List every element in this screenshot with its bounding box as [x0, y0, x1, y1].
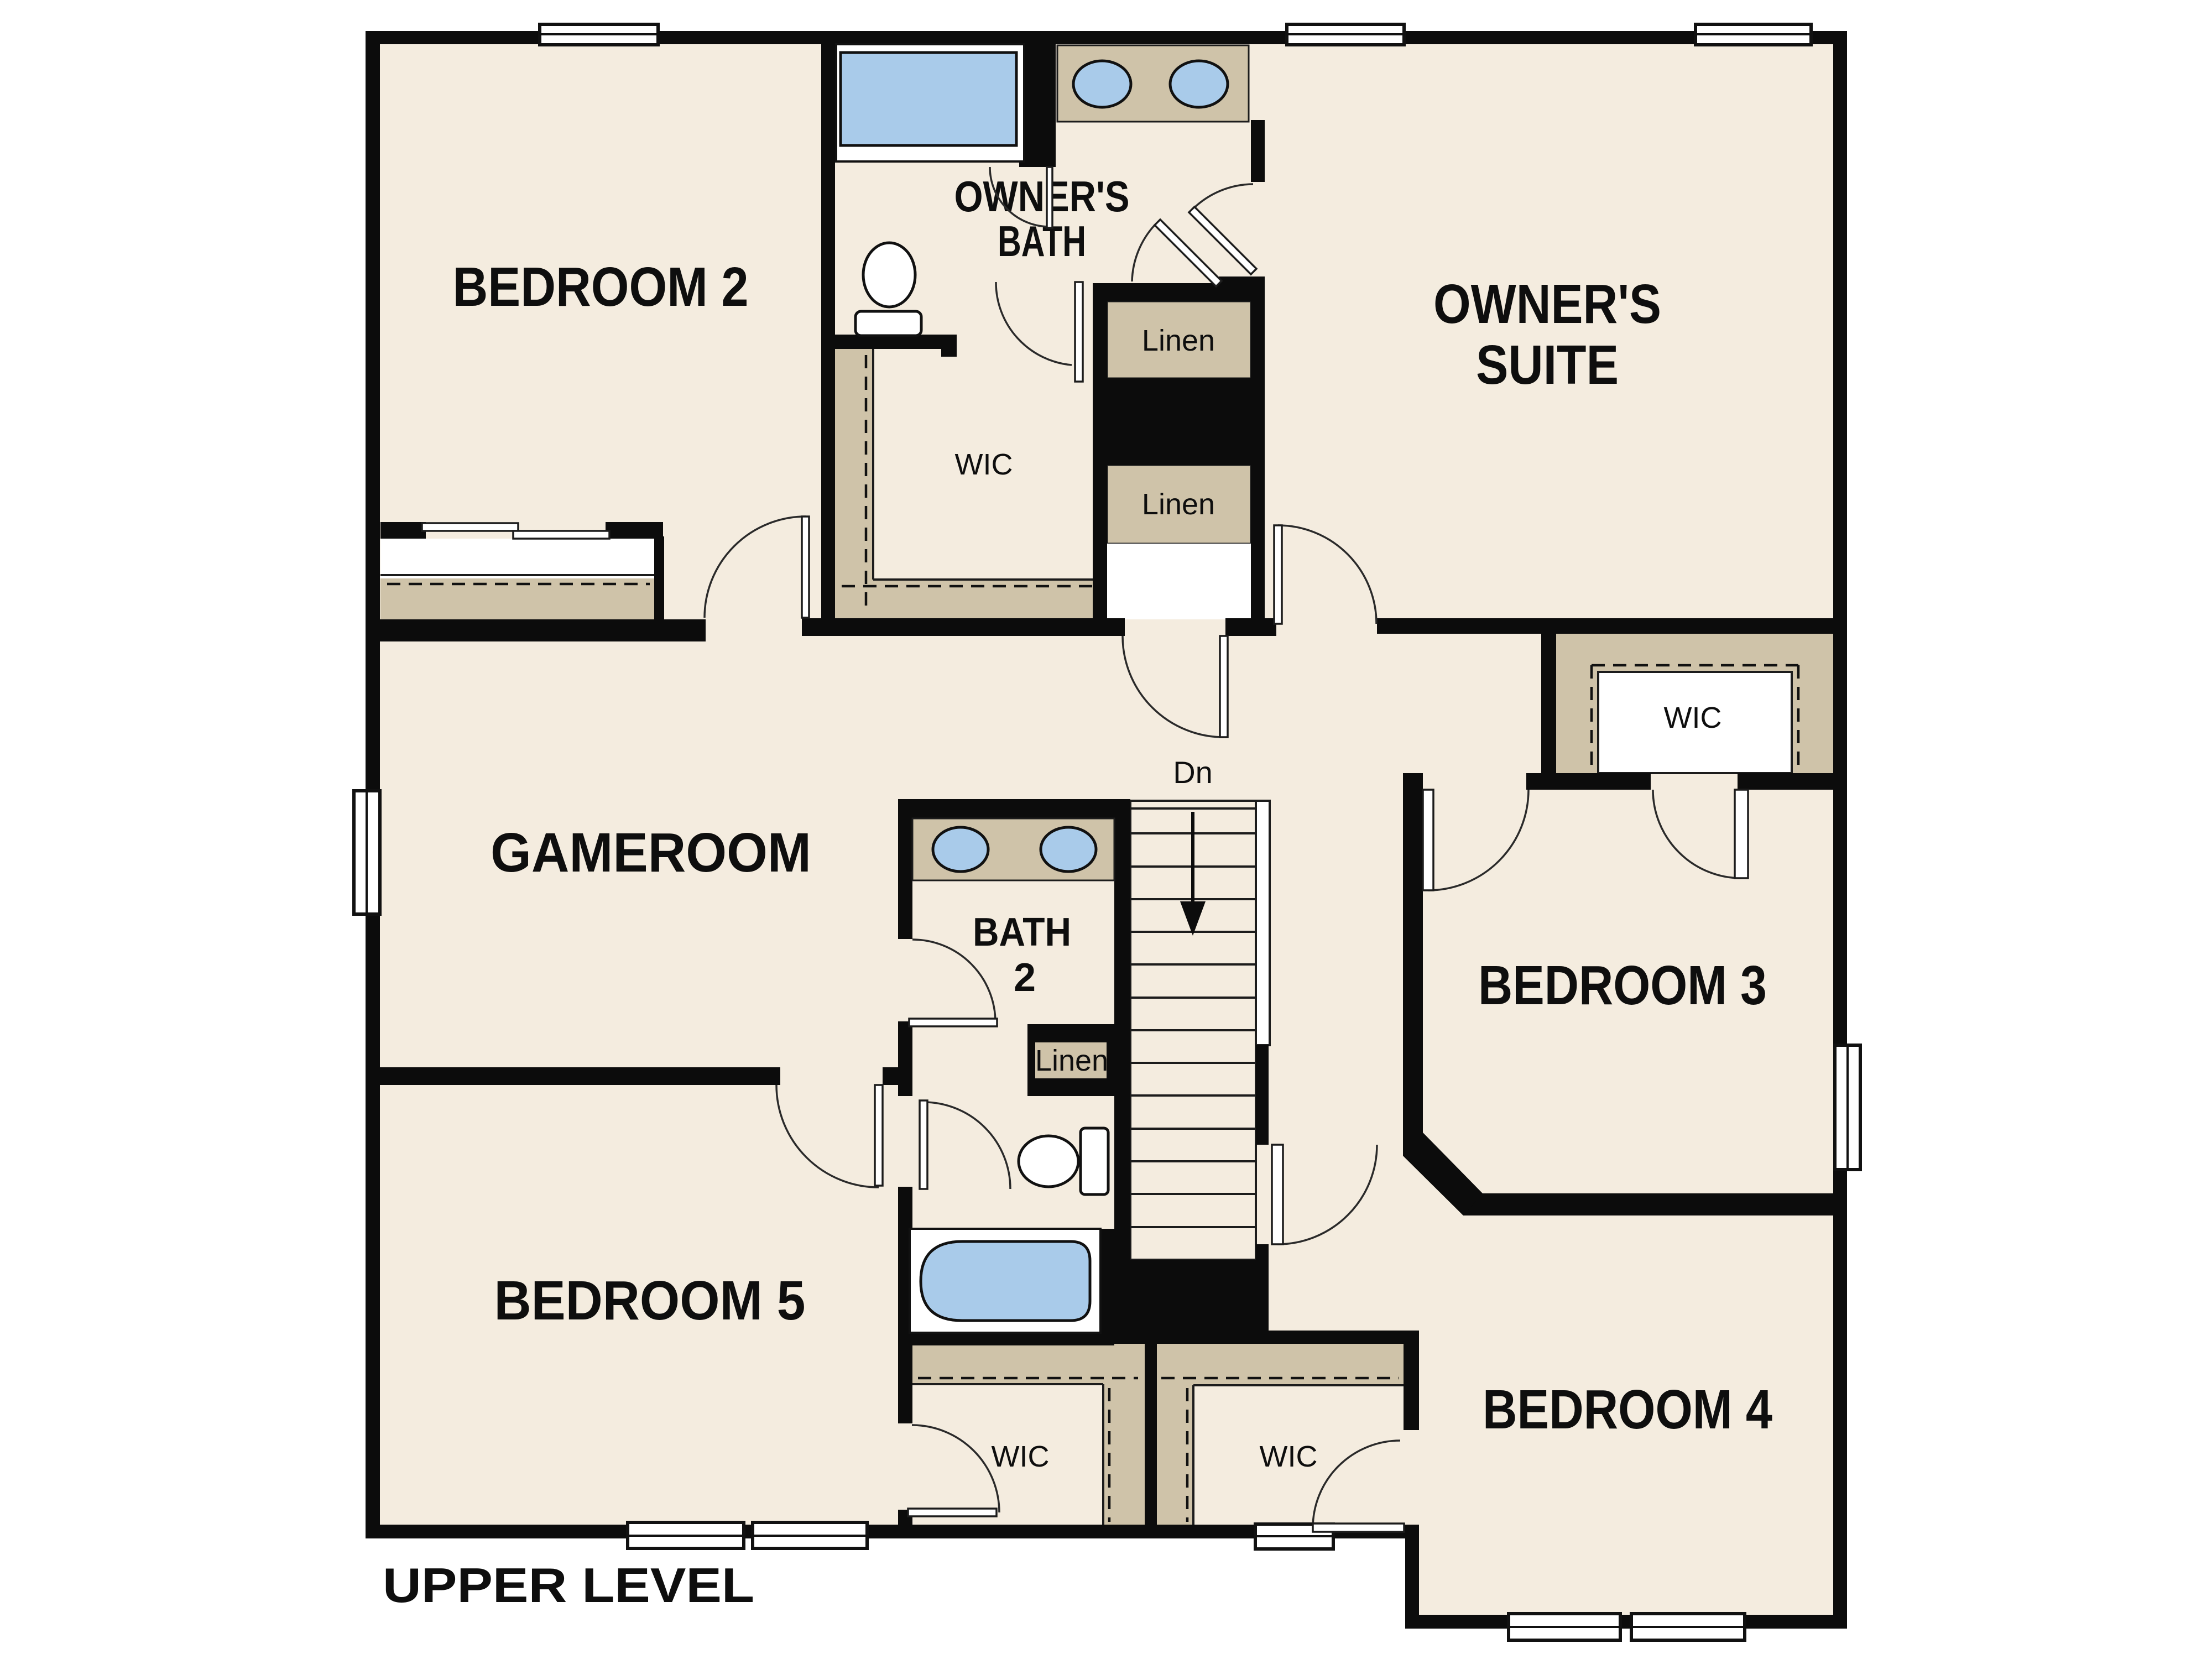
svg-text:UPPER LEVEL: UPPER LEVEL	[383, 1558, 754, 1613]
svg-text:WIC: WIC	[992, 1440, 1050, 1473]
svg-text:BEDROOM 4: BEDROOM 4	[1483, 1379, 1772, 1441]
svg-text:WIC: WIC	[1664, 701, 1722, 734]
svg-text:Dn: Dn	[1173, 755, 1213, 790]
svg-text:BATH: BATH	[998, 217, 1086, 265]
svg-text:BATH: BATH	[973, 910, 1071, 954]
svg-text:Linen: Linen	[1142, 324, 1215, 357]
svg-text:WIC: WIC	[955, 448, 1013, 481]
svg-text:Linen: Linen	[1035, 1044, 1108, 1077]
svg-text:SUITE: SUITE	[1476, 334, 1619, 396]
svg-text:BEDROOM 2: BEDROOM 2	[453, 256, 749, 318]
svg-text:WIC: WIC	[1260, 1440, 1318, 1473]
svg-text:Linen: Linen	[1142, 488, 1215, 521]
svg-text:OWNER'S: OWNER'S	[954, 172, 1130, 221]
svg-text:BEDROOM 5: BEDROOM 5	[494, 1270, 806, 1332]
svg-text:BEDROOM 3: BEDROOM 3	[1478, 954, 1767, 1016]
svg-text:OWNER'S: OWNER'S	[1433, 273, 1661, 335]
svg-text:GAMEROOM: GAMEROOM	[491, 822, 811, 884]
svg-text:2: 2	[1014, 956, 1036, 1000]
